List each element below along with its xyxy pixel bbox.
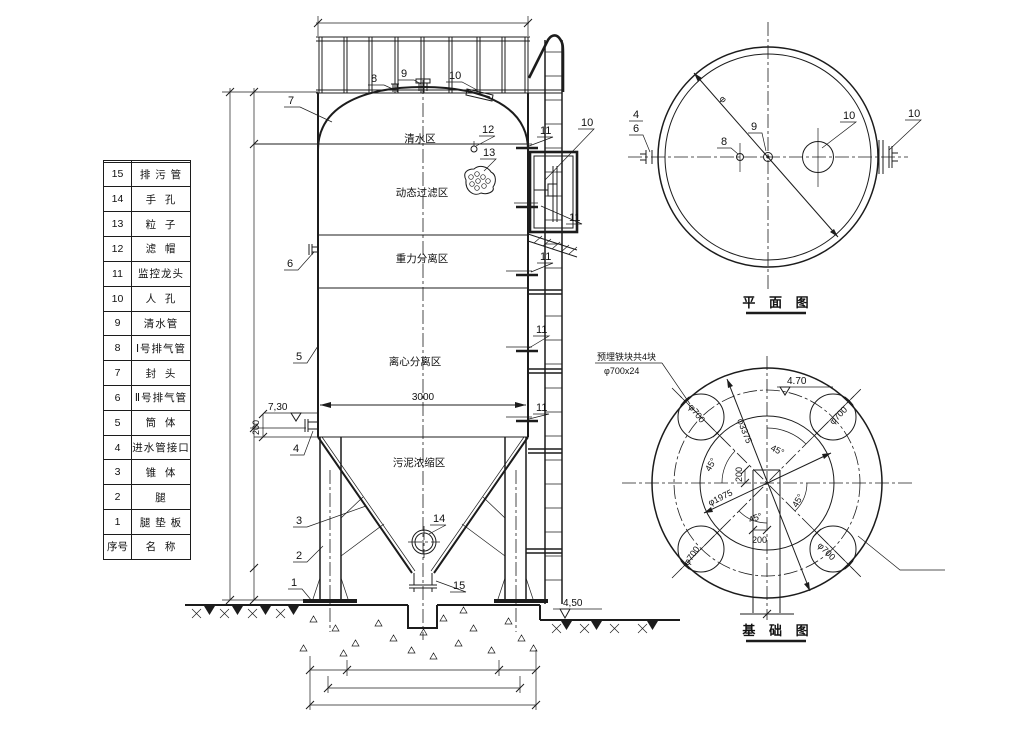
level-4-50: 4,50	[553, 598, 602, 618]
level-7-30: 7,30	[264, 402, 318, 421]
tank-shell	[254, 87, 528, 437]
callout-11: 11	[540, 125, 551, 137]
top-dimension	[314, 16, 532, 36]
engineering-drawing: 3000 7,30 200 4,50 清水区 动态过滤区 重力分离区	[0, 0, 1023, 736]
dim-3000: 3000	[412, 392, 435, 403]
phi-symbol: φ	[718, 94, 729, 105]
dim-200: 200	[251, 420, 261, 435]
hatched-bracket	[528, 234, 577, 257]
callout-8: 8	[721, 136, 727, 148]
drawing-sheet: 15排 污 管 14手 孔 13粒 子 12滤 帽 11监控龙头 10人 孔 9…	[0, 0, 1023, 736]
callout-13: 13	[483, 147, 495, 159]
callout-10: 10	[843, 110, 855, 122]
foundation-title: 基 础 图	[741, 623, 813, 638]
note-line1: 预埋铁块共4块	[597, 351, 656, 362]
foundation-leader	[858, 536, 945, 570]
callout-6: 6	[633, 123, 639, 135]
vent-pipe-2-nozzle	[309, 244, 318, 255]
angle-45-label: 45°	[703, 456, 719, 473]
dim-200: 200	[734, 467, 744, 482]
callout-6: 6	[287, 258, 293, 270]
callout-15: 15	[453, 580, 465, 592]
dia-main-label: φ3375	[735, 417, 754, 445]
gooseneck-vent-pipe	[529, 35, 563, 92]
level-top-value: 7,30	[268, 402, 288, 413]
level-value: 4.70	[787, 376, 807, 387]
callout-11: 11	[569, 212, 580, 224]
embedded-plate-note: 预埋铁块共4块 φ700x24	[595, 351, 690, 404]
level-ground-value: 4,50	[563, 598, 583, 609]
zone-label-sludge-thickening: 污泥浓缩区	[393, 456, 446, 469]
callout-11: 11	[536, 324, 547, 336]
zone-label-dynamic-filter: 动态过滤区	[396, 186, 449, 199]
monitoring-taps	[506, 144, 538, 421]
callout-1: 1	[291, 577, 297, 589]
callout-14: 14	[433, 513, 445, 525]
callout-4: 4	[633, 109, 639, 121]
particle-cluster	[465, 166, 496, 194]
offset-200-dim: 200	[251, 410, 267, 441]
zone-label-gravity-separation: 重力分离区	[396, 252, 449, 265]
callout-2: 2	[296, 550, 302, 562]
callout-3: 3	[296, 515, 302, 527]
inlet-nozzle	[305, 419, 318, 432]
callout-10-side: 10	[581, 117, 593, 129]
plan-vent-pipe-1	[737, 143, 744, 172]
callout-7: 7	[288, 95, 294, 107]
angle-45-label: 45°	[790, 492, 806, 509]
plate-dia-label: φ700	[681, 544, 701, 567]
top-railing	[316, 37, 562, 93]
callout-5: 5	[296, 351, 302, 363]
callout-4: 4	[293, 443, 299, 455]
angle-45-label: 45°	[769, 443, 786, 458]
plate-dia-label: φ700	[686, 402, 707, 425]
foundation-view: φ700 φ700 φ700 φ700 φ3375 φ1975 45°	[595, 351, 945, 641]
left-dimensions	[222, 88, 318, 604]
callout-10: 10	[908, 108, 920, 120]
callout-8: 8	[371, 73, 377, 85]
plate-dia-label: φ700	[816, 540, 838, 562]
callout-9: 9	[401, 68, 407, 80]
dia-3375-dim: φ3375	[727, 379, 810, 591]
zone-label-clear-water: 清水区	[404, 132, 436, 145]
plan-title: 平 面 图	[742, 295, 813, 310]
plan-view: φ 4 6 8 9 10 10	[628, 22, 921, 313]
foundation-centerlines	[622, 356, 912, 620]
callout-9: 9	[751, 121, 757, 133]
note-line2: φ700x24	[604, 366, 639, 376]
dim-200: 200	[752, 535, 767, 545]
ground-foundation	[185, 605, 680, 659]
callout-11: 11	[540, 251, 551, 263]
callout-12: 12	[482, 124, 494, 136]
zone-label-centrifugal-separation: 离心分离区	[389, 355, 442, 368]
bottom-dimensions	[306, 650, 540, 710]
foundation-200-dims	[741, 466, 771, 534]
plan-diameter-line: φ	[694, 73, 838, 237]
callout-10: 10	[449, 70, 461, 82]
plan-manhole	[803, 128, 834, 187]
callout-11: 11	[536, 402, 547, 414]
filter-cap-fitting	[471, 141, 477, 152]
